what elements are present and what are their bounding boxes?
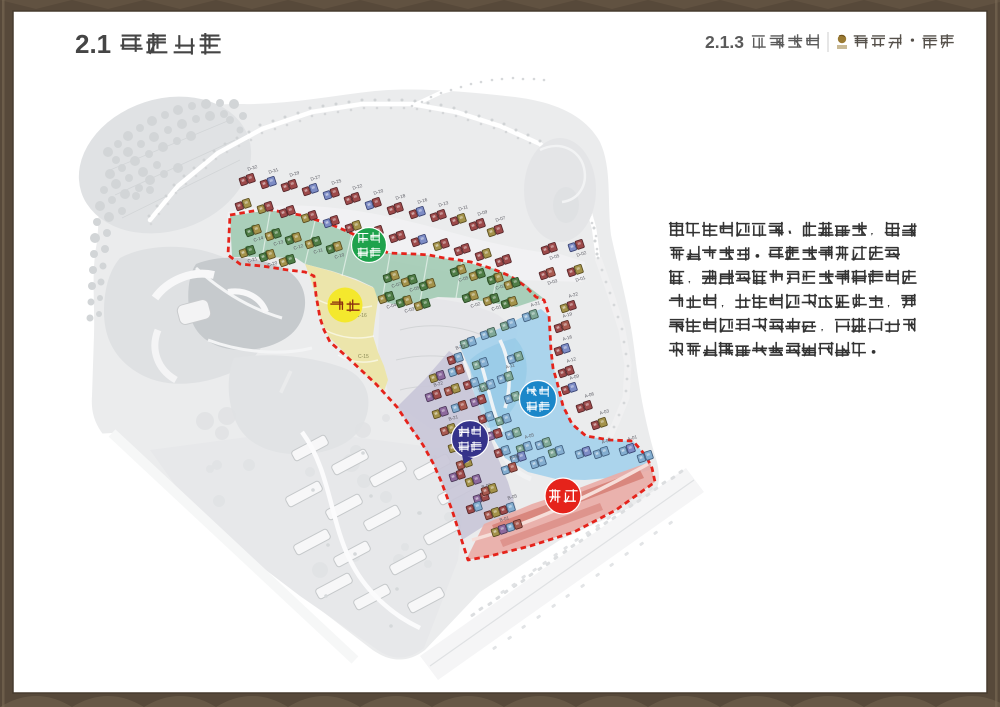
svg-text:2.1.3: 2.1.3: [705, 32, 744, 52]
svg-text:2.1: 2.1: [75, 29, 111, 59]
svg-text:C-15: C-15: [358, 354, 369, 360]
